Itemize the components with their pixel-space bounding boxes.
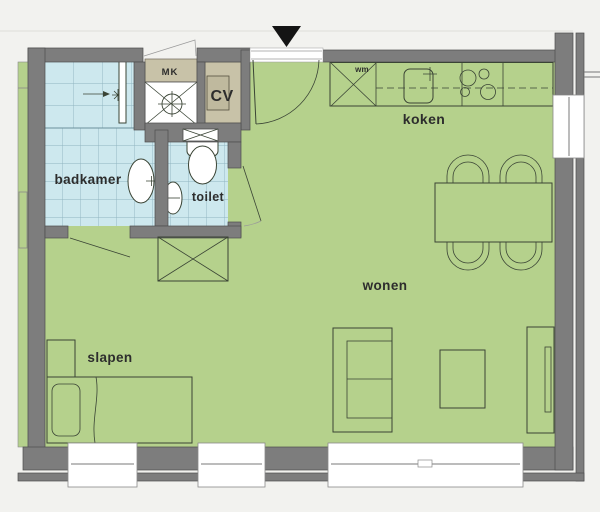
- floor-plan: badkamer toilet koken wonen slapen MK CV…: [0, 0, 600, 507]
- appliance-label-wm: wm: [354, 65, 369, 74]
- shower-screen: [119, 57, 126, 123]
- floor-plan-drawing: badkamer toilet koken wonen slapen MK CV…: [0, 0, 600, 507]
- window-mullion: [418, 460, 432, 467]
- vent-shaft: [183, 129, 218, 141]
- duct-shaft: [145, 82, 197, 125]
- window-bedroom: [68, 443, 137, 487]
- room-label-slapen: slapen: [87, 350, 132, 365]
- room-label-badkamer: badkamer: [55, 172, 122, 187]
- room-label-koken: koken: [403, 111, 445, 127]
- window-bedroom-2: [198, 443, 265, 487]
- left-facade-strip: [18, 62, 28, 447]
- toilet-bowl: [187, 137, 218, 184]
- room-label-wonen: wonen: [362, 278, 408, 293]
- dining-table: [435, 183, 552, 242]
- closet-label-mk: MK: [162, 67, 179, 78]
- room-label-toilet: toilet: [192, 190, 225, 204]
- closet-label-cv: CV: [210, 88, 233, 105]
